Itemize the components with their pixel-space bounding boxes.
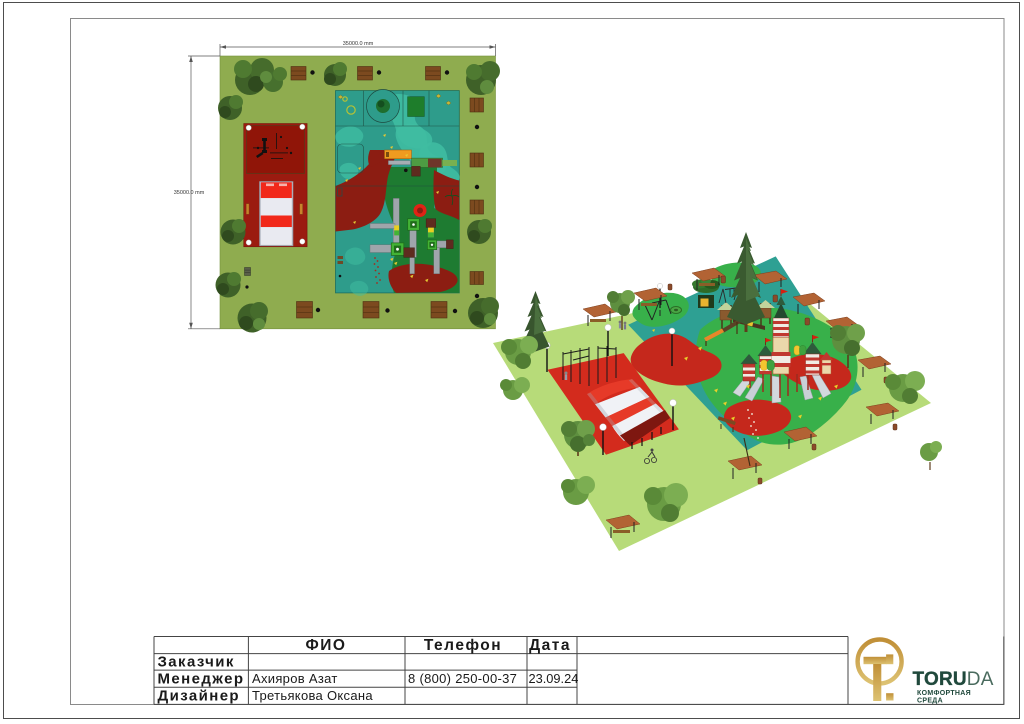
svg-text:8 (800) 250-00-37: 8 (800) 250-00-37 — [408, 671, 517, 686]
svg-text:35000.0 mm: 35000.0 mm — [343, 41, 374, 47]
svg-text:Дизайнер: Дизайнер — [158, 688, 241, 705]
svg-text:Менеджер: Менеджер — [158, 671, 245, 688]
svg-text:ФИО: ФИО — [306, 637, 347, 654]
svg-text:КОМФОРТНАЯ: КОМФОРТНАЯ — [917, 690, 971, 697]
svg-text:Заказчик: Заказчик — [158, 654, 235, 671]
svg-text:Телефон: Телефон — [424, 637, 502, 654]
svg-text:35000.0 mm: 35000.0 mm — [174, 190, 205, 196]
svg-text:Ахияров Азат: Ахияров Азат — [252, 671, 338, 686]
svg-text:Третьякова Оксана: Третьякова Оксана — [252, 688, 373, 703]
svg-text:Дата: Дата — [529, 637, 571, 654]
svg-text:СРЕДА: СРЕДА — [917, 698, 943, 705]
svg-text:23.09.24: 23.09.24 — [529, 671, 579, 686]
svg-text:TORUDA: TORUDA — [913, 669, 994, 690]
